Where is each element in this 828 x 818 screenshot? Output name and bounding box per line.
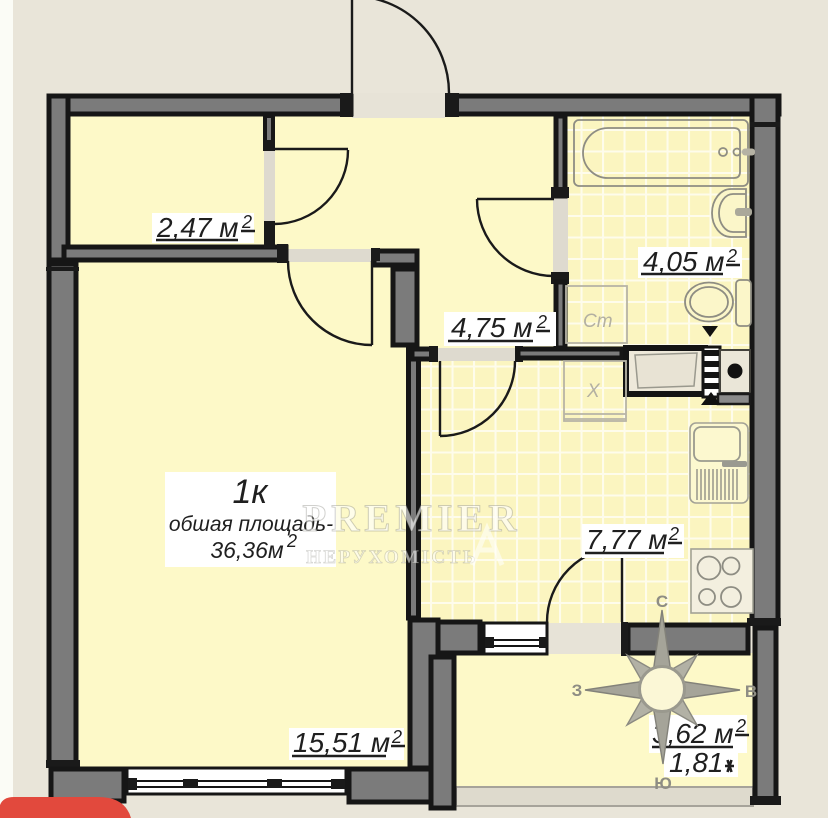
- svg-text:1к: 1к: [233, 473, 270, 511]
- svg-text:7,77 м: 7,77 м: [586, 524, 667, 555]
- svg-text:2: 2: [391, 727, 402, 747]
- svg-text:2: 2: [726, 246, 737, 266]
- svg-text:З: З: [572, 681, 583, 700]
- svg-text:С: С: [656, 592, 668, 611]
- svg-text:4,75 м: 4,75 м: [451, 312, 532, 343]
- svg-text:1,81: 1,81: [669, 747, 724, 778]
- svg-text:2,47 м: 2,47 м: [156, 212, 238, 243]
- svg-text:4,05 м: 4,05 м: [643, 246, 724, 277]
- svg-text:2: 2: [735, 716, 746, 736]
- svg-text:В: В: [745, 682, 757, 701]
- svg-text:Ю: Ю: [654, 774, 672, 793]
- svg-text:2: 2: [241, 212, 252, 232]
- svg-text:2: 2: [536, 312, 547, 332]
- svg-text:36,36м: 36,36м: [210, 537, 284, 563]
- svg-text:2: 2: [286, 531, 297, 551]
- svg-text:НЕРУХОМІСТЬ: НЕРУХОМІСТЬ: [306, 547, 478, 568]
- svg-text:2: 2: [668, 524, 679, 544]
- svg-text:Х: Х: [586, 381, 601, 402]
- svg-text:Ст: Ст: [583, 311, 613, 332]
- svg-text:15,51 м: 15,51 м: [293, 727, 390, 758]
